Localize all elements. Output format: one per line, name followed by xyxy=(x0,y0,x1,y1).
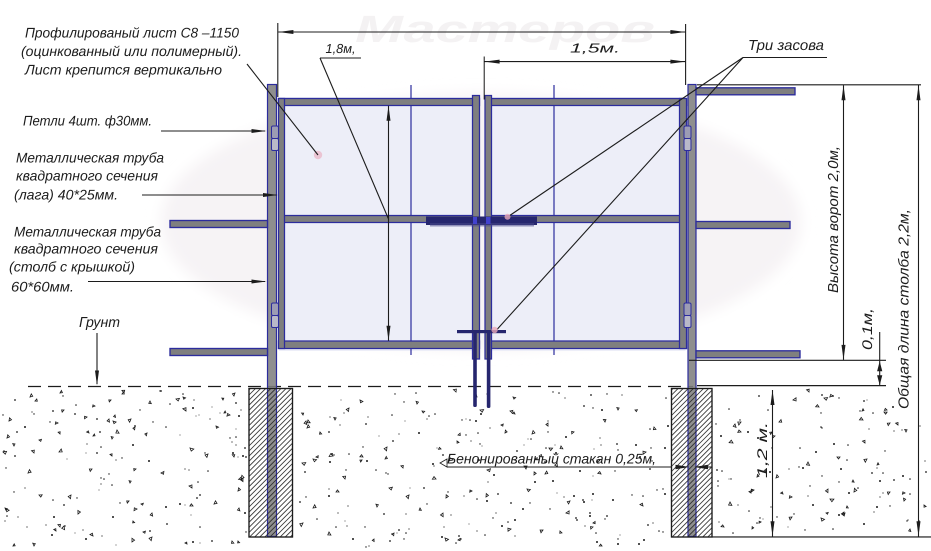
svg-text:(оцинкованный или полимерный).: (оцинкованный или полимерный). xyxy=(21,43,242,59)
svg-text:квадратного сечения: квадратного сечения xyxy=(14,241,159,257)
svg-text:1,5м.: 1,5м. xyxy=(570,41,620,56)
svg-text:Высота ворот 2,0м,: Высота ворот 2,0м, xyxy=(826,146,842,293)
svg-text:(лага) 40*25мм.: (лага) 40*25мм. xyxy=(14,187,118,203)
svg-text:квадратного сечения: квадратного сечения xyxy=(16,168,159,184)
svg-text:Металлическая труба: Металлическая труба xyxy=(16,150,164,166)
svg-text:0,1м,: 0,1м, xyxy=(859,308,875,350)
svg-text:1,2 м.: 1,2 м. xyxy=(754,422,770,478)
svg-text:60*60мм.: 60*60мм. xyxy=(11,279,74,295)
svg-text:1,8м,: 1,8м, xyxy=(326,41,356,56)
svg-text:Лист крепится вертикально: Лист крепится вертикально xyxy=(24,62,222,78)
svg-text:Общая длина столба 2,2м,: Общая длина столба 2,2м, xyxy=(897,209,913,409)
svg-text:(столб с крышкой): (столб с крышкой) xyxy=(9,259,135,275)
svg-text:Три засова: Три засова xyxy=(748,38,824,54)
svg-text:Грунт: Грунт xyxy=(79,315,120,331)
svg-text:Профилированый лист С8 –1150: Профилированый лист С8 –1150 xyxy=(25,25,239,41)
svg-text:Петли 4шт. ф30мм.: Петли 4шт. ф30мм. xyxy=(23,113,152,129)
svg-text:Бенонированный стакан 0,25м,: Бенонированный стакан 0,25м, xyxy=(447,451,656,467)
svg-text:Металлическая труба: Металлическая труба xyxy=(14,224,161,240)
